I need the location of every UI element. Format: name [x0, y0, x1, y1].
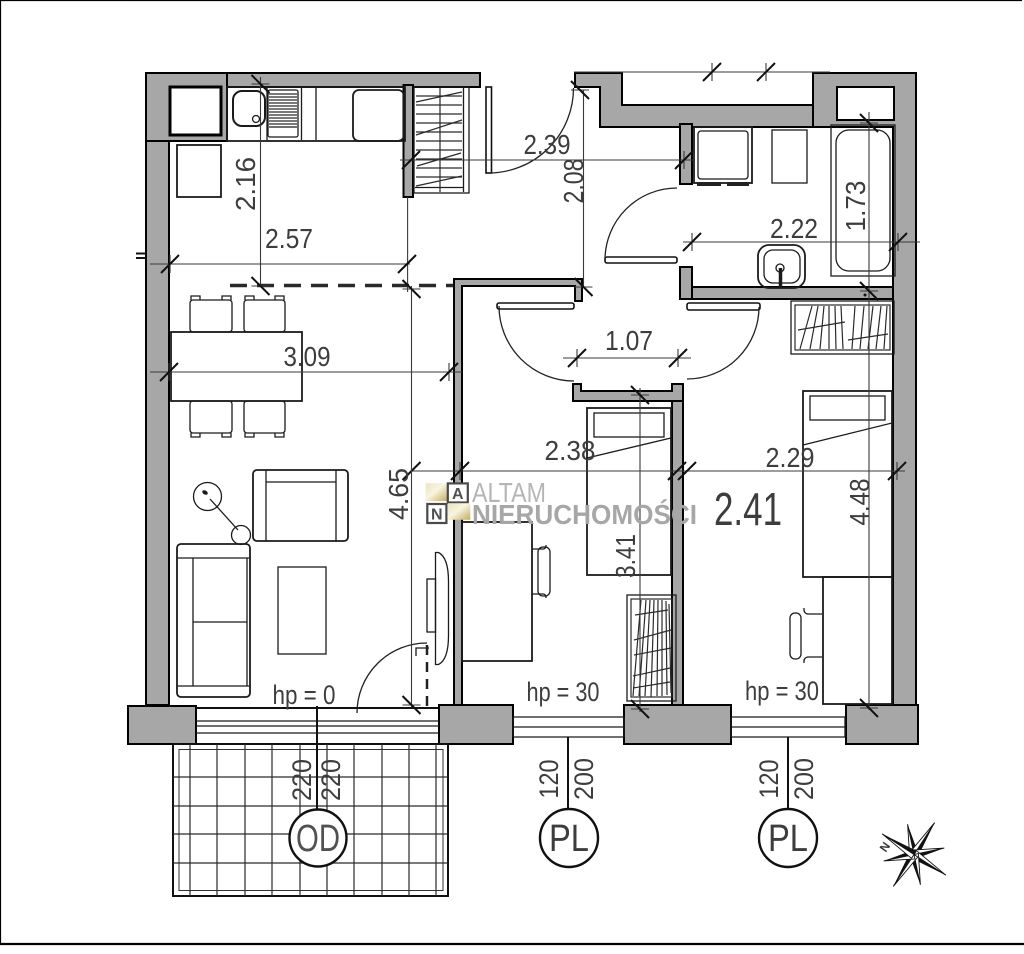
- svg-text:2.29: 2.29: [766, 442, 815, 473]
- svg-text:2.08: 2.08: [558, 159, 589, 204]
- svg-text:2.39: 2.39: [524, 129, 571, 160]
- svg-text:A: A: [452, 486, 464, 503]
- svg-text:220: 220: [316, 759, 346, 801]
- svg-text:1.07: 1.07: [605, 325, 653, 356]
- svg-text:2.16: 2.16: [230, 157, 261, 211]
- svg-text:hp = 30: hp = 30: [745, 676, 819, 706]
- svg-text:OD: OD: [296, 818, 340, 860]
- svg-text:4.48: 4.48: [844, 479, 875, 526]
- svg-text:PL: PL: [549, 818, 589, 860]
- svg-text:120: 120: [534, 760, 564, 799]
- svg-text:N: N: [431, 507, 443, 524]
- svg-text:4.65: 4.65: [383, 468, 414, 520]
- svg-text:NIERUCHOMOŚCI: NIERUCHOMOŚCI: [472, 499, 697, 530]
- svg-text:hp = 0: hp = 0: [273, 680, 336, 710]
- svg-text:1.73: 1.73: [840, 181, 871, 232]
- svg-text:200: 200: [569, 758, 599, 800]
- svg-text:2.41: 2.41: [714, 483, 782, 535]
- svg-text:3.09: 3.09: [284, 341, 331, 372]
- svg-text:220: 220: [287, 759, 317, 801]
- svg-text:3.41: 3.41: [610, 534, 641, 578]
- svg-text:200: 200: [789, 758, 819, 800]
- svg-text:2.57: 2.57: [265, 223, 313, 254]
- svg-text:2.22: 2.22: [770, 213, 818, 244]
- svg-text:120: 120: [754, 760, 784, 799]
- svg-text:2.38: 2.38: [545, 435, 596, 466]
- svg-text:hp = 30: hp = 30: [527, 677, 600, 707]
- svg-text:PL: PL: [768, 818, 808, 860]
